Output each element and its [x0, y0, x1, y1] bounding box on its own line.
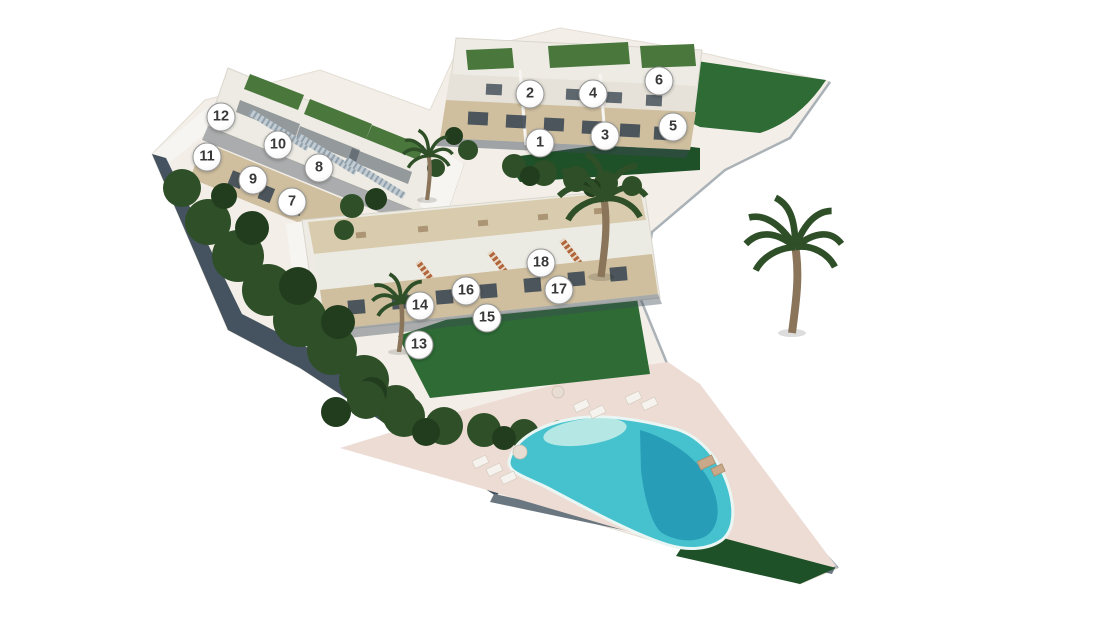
- unit-marker-15[interactable]: 15: [473, 304, 502, 333]
- unit-marker-11[interactable]: 11: [193, 143, 222, 172]
- site-plan-image: 123456789101112131415161718: [0, 0, 1110, 623]
- unit-marker-6[interactable]: 6: [645, 67, 674, 96]
- unit-marker-18[interactable]: 18: [527, 249, 556, 278]
- unit-marker-1[interactable]: 1: [526, 129, 555, 158]
- unit-marker-10[interactable]: 10: [264, 131, 293, 160]
- unit-marker-14[interactable]: 14: [406, 292, 435, 321]
- unit-markers: 123456789101112131415161718: [0, 0, 1110, 623]
- unit-marker-4[interactable]: 4: [579, 80, 608, 109]
- unit-marker-3[interactable]: 3: [591, 122, 620, 151]
- unit-marker-13[interactable]: 13: [405, 331, 434, 360]
- unit-marker-5[interactable]: 5: [659, 113, 688, 142]
- unit-marker-2[interactable]: 2: [516, 80, 545, 109]
- unit-marker-16[interactable]: 16: [452, 277, 481, 306]
- unit-marker-7[interactable]: 7: [278, 188, 307, 217]
- unit-marker-8[interactable]: 8: [305, 154, 334, 183]
- unit-marker-9[interactable]: 9: [239, 166, 268, 195]
- unit-marker-12[interactable]: 12: [207, 103, 236, 132]
- unit-marker-17[interactable]: 17: [545, 276, 574, 305]
